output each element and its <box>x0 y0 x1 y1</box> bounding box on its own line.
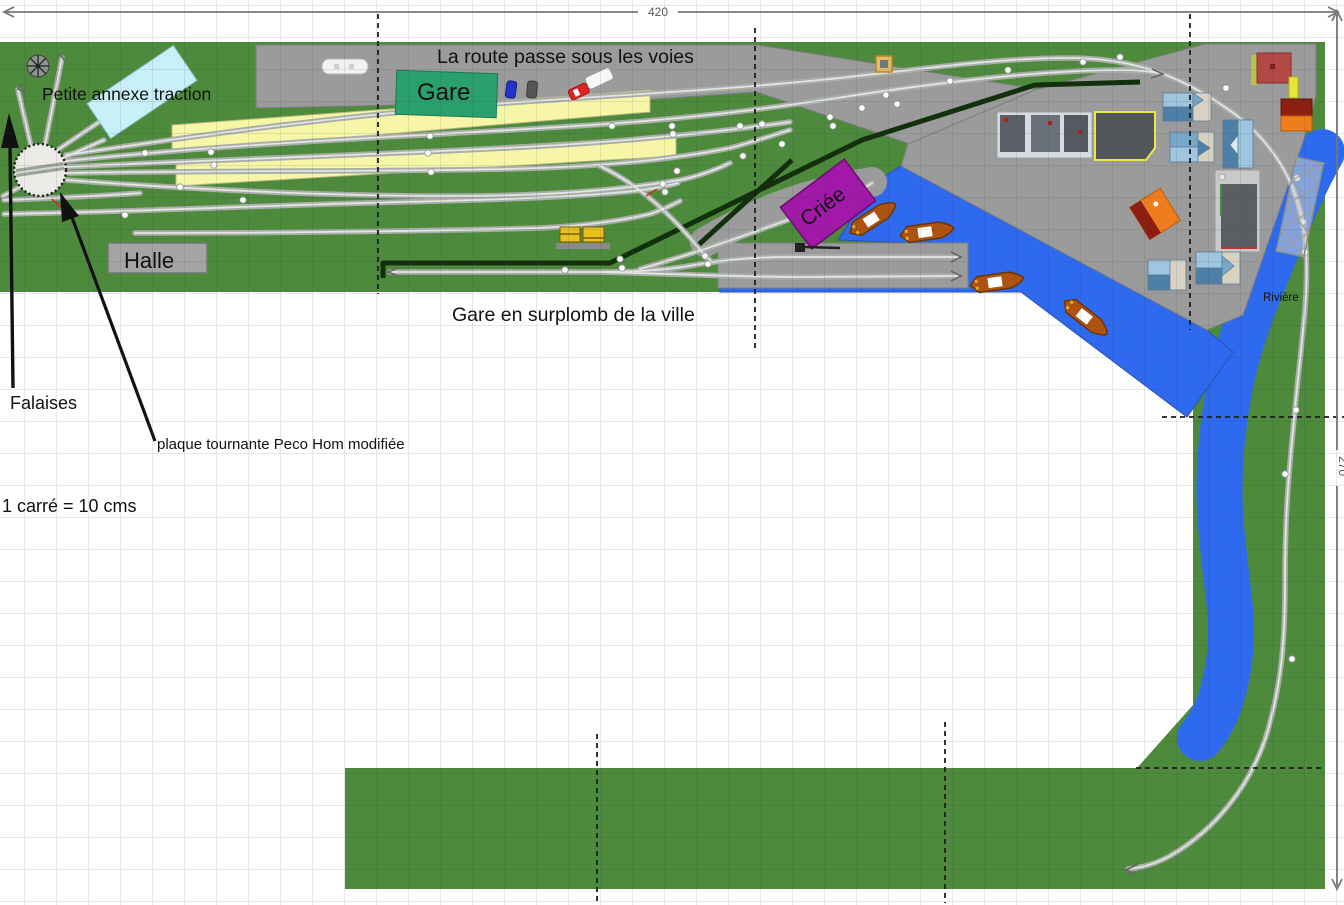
plan-canvas: 420 270 La route passe sous les voies Ga… <box>0 0 1344 905</box>
falaises-label: Falaises <box>10 393 77 413</box>
annexe-label: Petite annexe traction <box>42 84 211 104</box>
route-label: La route passe sous les voies <box>437 46 694 68</box>
dim-vertical-label: 270 <box>1336 456 1344 476</box>
riviere-label: Rivière <box>1263 292 1299 304</box>
gare-label: Gare <box>417 79 470 106</box>
halle-label: Halle <box>124 248 174 273</box>
turntable-note-label: plaque tournante Peco Hom modifiée <box>157 436 405 453</box>
model-railway-plan: 420 270 La route passe sous les voies Ga… <box>0 0 1344 905</box>
dim-horizontal-label: 420 <box>648 5 668 19</box>
gare-overlook-label: Gare en surplomb de la ville <box>452 304 695 326</box>
scale-note-label: 1 carré = 10 cms <box>2 496 137 516</box>
